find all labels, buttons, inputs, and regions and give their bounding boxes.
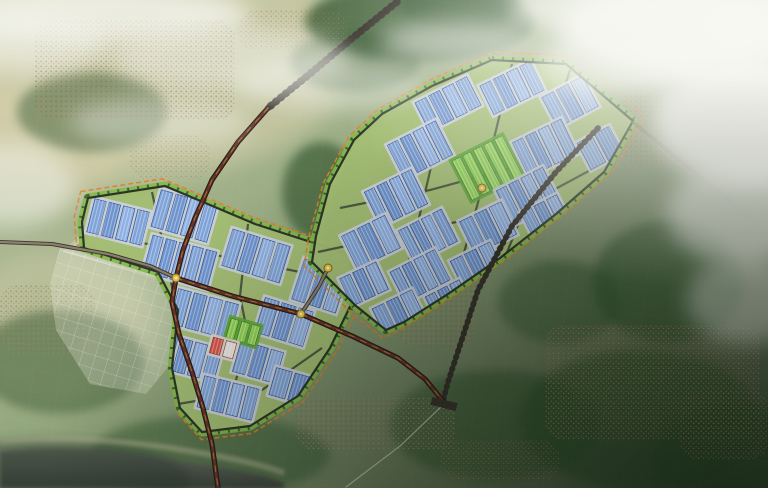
masterplan-aerial-map: [0, 0, 768, 488]
map-render-canvas: [0, 0, 768, 488]
vignette-bottom-right: [0, 0, 768, 488]
render-root: [0, 0, 768, 488]
